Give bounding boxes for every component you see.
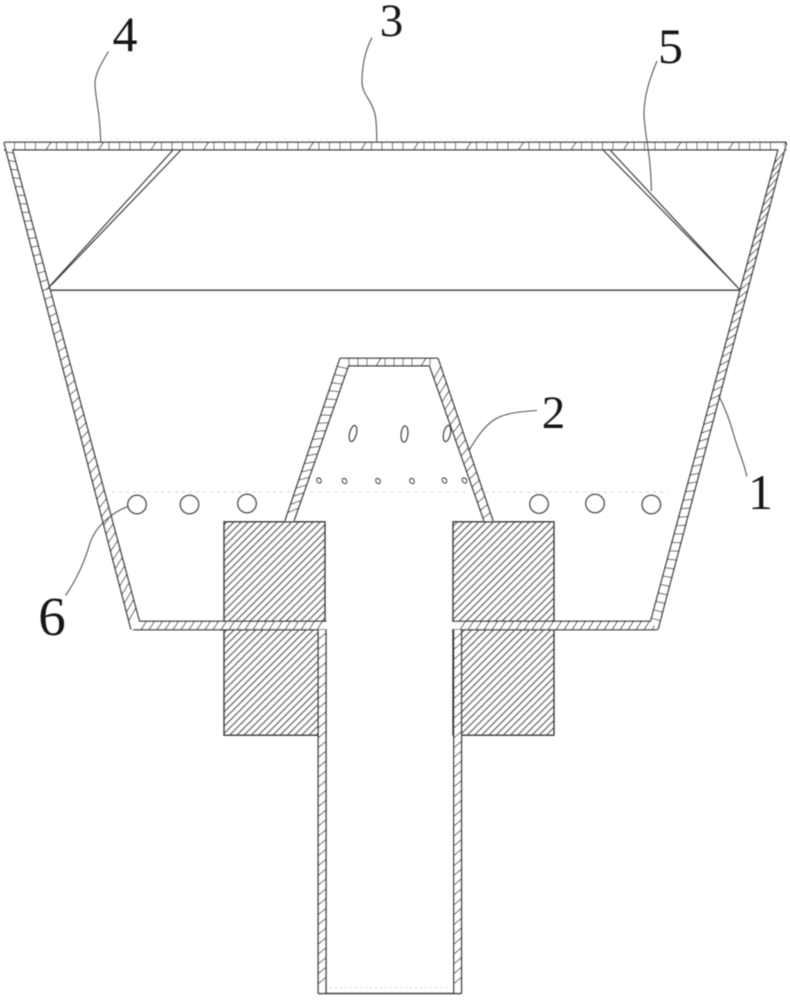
svg-text:4: 4 xyxy=(113,6,138,62)
svg-text:3: 3 xyxy=(380,0,404,47)
svg-text:6: 6 xyxy=(38,586,66,647)
svg-text:5: 5 xyxy=(658,18,683,74)
svg-text:2: 2 xyxy=(542,387,566,439)
svg-text:1: 1 xyxy=(748,464,773,520)
